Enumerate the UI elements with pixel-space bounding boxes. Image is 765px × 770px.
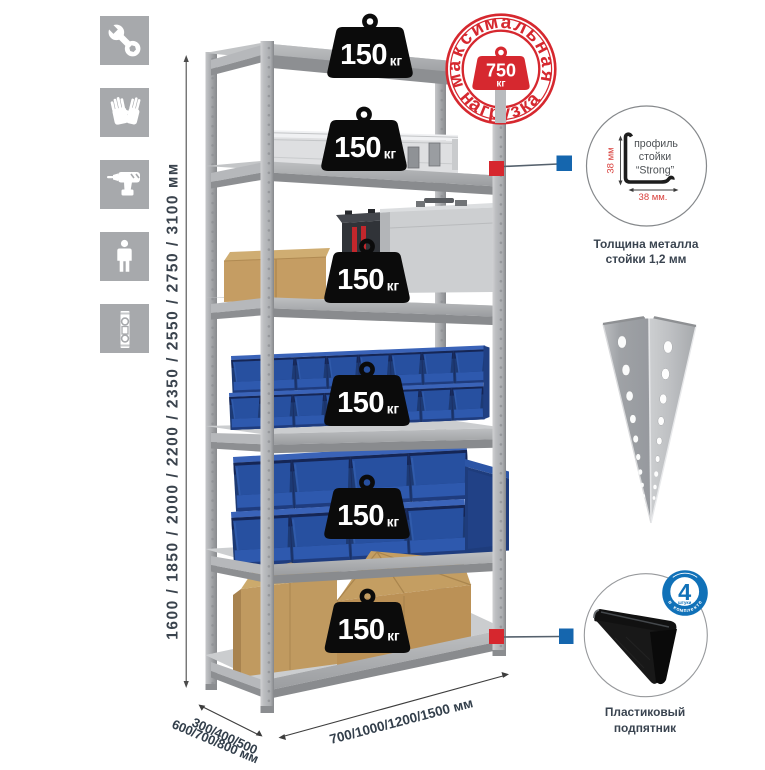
svg-text:Толщина металла: Толщина металла — [594, 237, 699, 251]
svg-text:профиль: профиль — [634, 138, 678, 150]
svg-text:750: 750 — [486, 61, 516, 81]
svg-text:38 мм.: 38 мм. — [639, 192, 668, 203]
svg-text:38 мм: 38 мм — [606, 147, 617, 173]
svg-text:Пластиковый: Пластиковый — [605, 705, 685, 719]
svg-text:кг: кг — [496, 79, 505, 90]
svg-text:стойки: стойки — [639, 151, 671, 163]
svg-text:1600 / 1850 / 2000 / 2200 / 23: 1600 / 1850 / 2000 / 2200 / 2350 / 2550 … — [165, 162, 182, 640]
svg-text:а: а — [444, 60, 466, 72]
svg-text:штуки: штуки — [678, 600, 692, 605]
svg-text:подпятник: подпятник — [614, 721, 676, 735]
svg-text:стойки 1,2 мм: стойки 1,2 мм — [606, 252, 687, 266]
svg-text:“Strong”: “Strong” — [636, 165, 675, 177]
